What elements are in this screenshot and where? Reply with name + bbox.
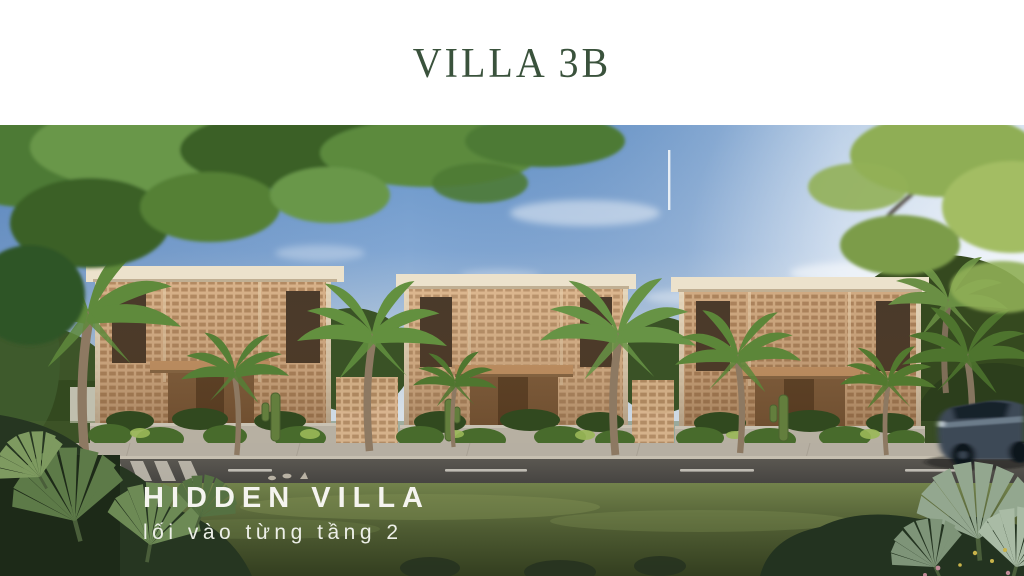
hero-subtitle: lối vào từng tầng 2 bbox=[143, 522, 430, 543]
hero-title: HIDDEN VILLA bbox=[143, 484, 430, 513]
curb bbox=[0, 456, 1024, 459]
hero-overlay: HIDDEN VILLA lối vào từng tầng 2 bbox=[143, 484, 430, 543]
slide: VILLA 3B bbox=[0, 0, 1024, 576]
street bbox=[0, 443, 1024, 485]
page-title: VILLA 3B bbox=[413, 38, 611, 88]
flagpole bbox=[668, 150, 670, 210]
slide-header: VILLA 3B bbox=[0, 0, 1024, 125]
